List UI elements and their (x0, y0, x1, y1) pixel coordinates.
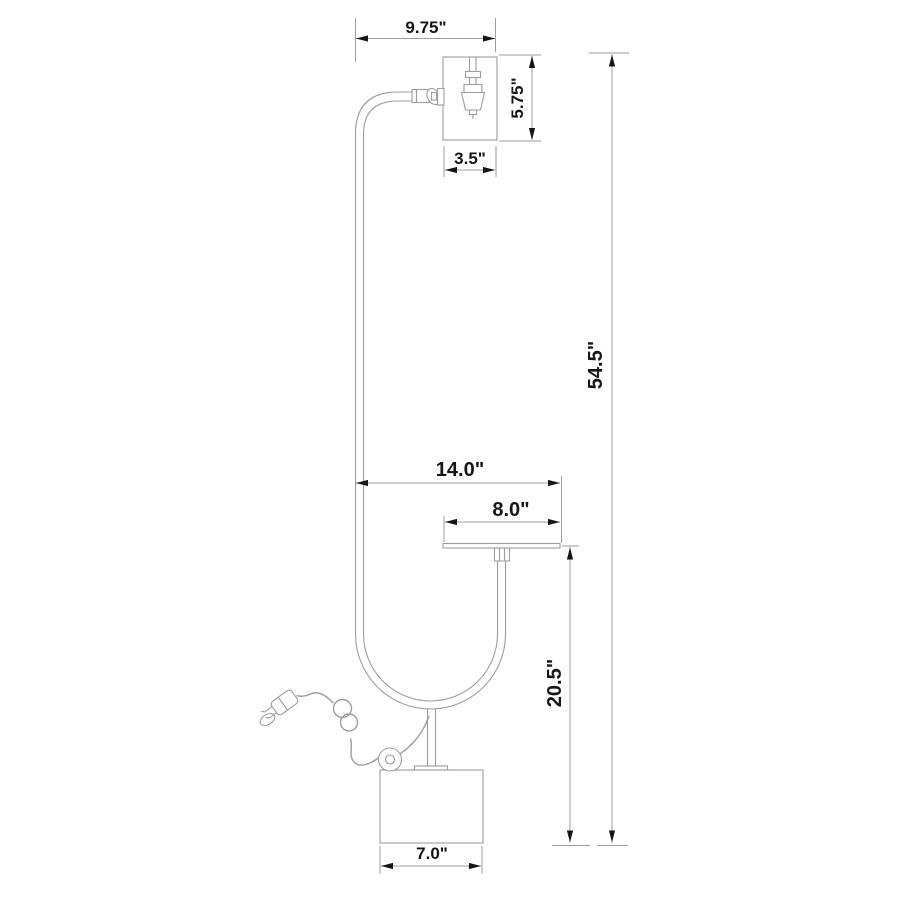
pole-stem (415, 709, 448, 770)
foot-switch-button (386, 755, 395, 764)
socket-cap (464, 85, 482, 93)
coil-loop (341, 714, 358, 731)
dim-label-base-width: 7.0" (416, 844, 448, 863)
dim-tray-span: 14.0" (356, 459, 562, 543)
dim-shade-height: 5.75" (499, 55, 541, 141)
dimension-annotations: 9.75" 5.75" 3.5" 14.0" (356, 18, 630, 874)
lamp-pole (356, 92, 506, 709)
dim-shade-width: 3.5" (444, 146, 496, 177)
dim-label-tray-width: 8.0" (492, 499, 529, 521)
dim-label-shade-top-span: 9.75" (405, 18, 446, 37)
dim-base-width: 7.0" (380, 844, 482, 874)
socket-tip (470, 110, 477, 115)
socket-body (462, 93, 485, 111)
arrowhead-left (356, 35, 368, 41)
lamp-dimension-diagram: 9.75" 5.75" 3.5" 14.0" (0, 0, 900, 900)
stem-flange (415, 766, 448, 770)
dim-label-shade-width: 3.5" (454, 149, 486, 168)
cord-coil-to-plug (297, 693, 334, 703)
plug-tag (258, 711, 277, 728)
arrowhead-right (548, 519, 560, 525)
power-cord (258, 689, 429, 771)
arrowhead-left (445, 519, 457, 525)
arrowhead-left (381, 863, 393, 869)
arrowhead-down (567, 831, 573, 843)
arrowhead-down (609, 831, 615, 843)
lamp-base (380, 770, 483, 843)
clamp-knob (432, 93, 437, 101)
floor-lamp-drawing (258, 57, 560, 843)
dim-label-tray-span: 14.0" (436, 459, 484, 481)
arrowhead-right (483, 35, 495, 41)
arm-coupler (412, 90, 429, 103)
arrowhead-up (567, 548, 573, 560)
cord-stem-to-switch (401, 716, 430, 754)
dim-overall-height: 54.5" (585, 53, 629, 846)
plug-body (270, 689, 300, 717)
dim-label-overall-height: 54.5" (585, 341, 607, 389)
arrowhead-up (609, 55, 615, 67)
cord-switch-to-coil (351, 739, 380, 766)
arrowhead-left (356, 480, 368, 486)
dim-label-tray-height: 20.5" (544, 659, 566, 707)
plug-prong (261, 705, 272, 714)
coil-loop (334, 700, 352, 718)
pole-inner-line (364, 101, 498, 701)
shelf-collar (495, 548, 510, 561)
foot-switch (379, 748, 402, 771)
dim-tray-height: 20.5" (544, 546, 590, 846)
socket-collar (466, 72, 481, 78)
diagram-svg: 9.75" 5.75" 3.5" 14.0" (0, 0, 900, 900)
tray-shelf (443, 544, 560, 562)
arrowhead-down (529, 128, 535, 140)
shade-clamp (438, 89, 445, 106)
dim-shade-top-span: 9.75" (356, 18, 496, 62)
cord-coil (334, 700, 358, 732)
pole-outer-line (356, 92, 506, 709)
tray-plate (443, 544, 560, 549)
lamp-arm-joint (412, 86, 444, 107)
dim-label-shade-height: 5.75" (508, 77, 527, 118)
arrowhead-right (469, 863, 481, 869)
dim-tray-width: 8.0" (444, 499, 560, 542)
arrowhead-right (548, 480, 560, 486)
arrowhead-up (529, 56, 535, 68)
power-plug (260, 689, 299, 723)
